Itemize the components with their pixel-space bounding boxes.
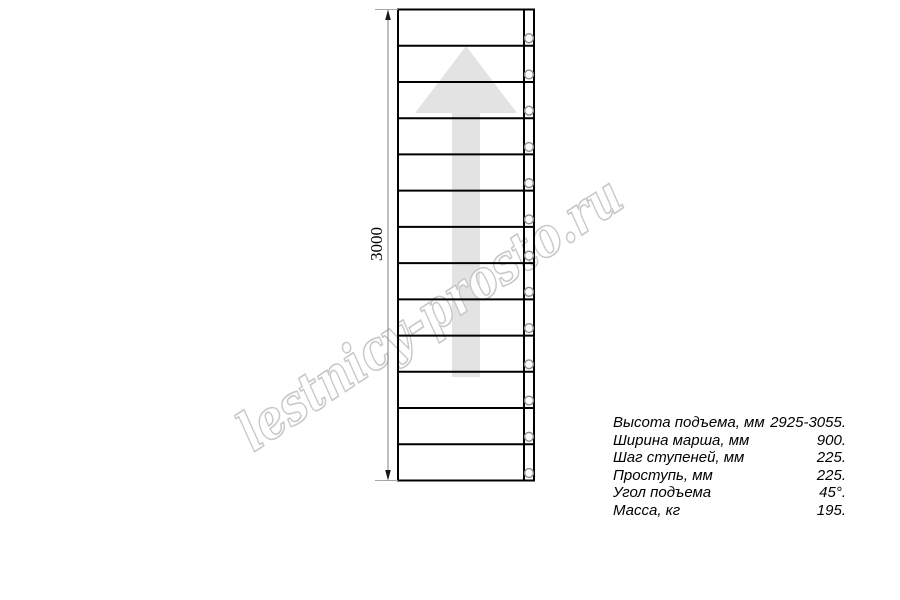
spec-row: Шаг ступеней, мм225. [613,449,846,467]
dimension-label: 3000 [367,227,386,261]
bolt-hole-icon [525,251,534,260]
bolt-hole-icon [525,324,534,333]
spec-value: 900. [817,432,846,450]
bolt-hole-icon [525,179,534,188]
spec-label: Шаг ступеней, мм [613,449,744,467]
watermark-text: lestnicy-prosto.ru [225,163,634,464]
bolt-hole-icon [525,396,534,405]
bolt-hole-icon [525,143,534,152]
spec-value: 45°. [819,484,846,502]
bolt-hole-icon [525,432,534,441]
spec-row: Угол подъема45°. [613,484,846,502]
spec-label: Ширина марша, мм [613,432,749,450]
bolt-hole-icon [525,469,534,478]
spec-value: 195. [817,502,846,520]
specs-table: Высота подъема, мм2925-3055.Ширина марша… [613,414,846,520]
bolt-hole-icon [525,215,534,224]
spec-row: Высота подъема, мм2925-3055. [613,414,846,432]
spec-label: Угол подъема [613,484,711,502]
bolt-hole-icon [525,106,534,115]
dimension-arrow-bottom [385,470,391,481]
spec-row: Ширина марша, мм900. [613,432,846,450]
bolt-hole-icon [525,287,534,296]
spec-label: Проступь, мм [613,467,713,485]
dimension-arrow-top [385,10,391,21]
spec-label: Масса, кг [613,502,680,520]
spec-label: Высота подъема, мм [613,414,765,432]
bolt-hole-icon [525,360,534,369]
spec-row: Проступь, мм225. [613,467,846,485]
bolt-hole-icon [525,34,534,43]
bolt-hole-icon [525,70,534,79]
spec-value: 225. [817,467,846,485]
spec-row: Масса, кг195. [613,502,846,520]
spec-value: 225. [817,449,846,467]
spec-value: 2925-3055. [770,414,846,432]
